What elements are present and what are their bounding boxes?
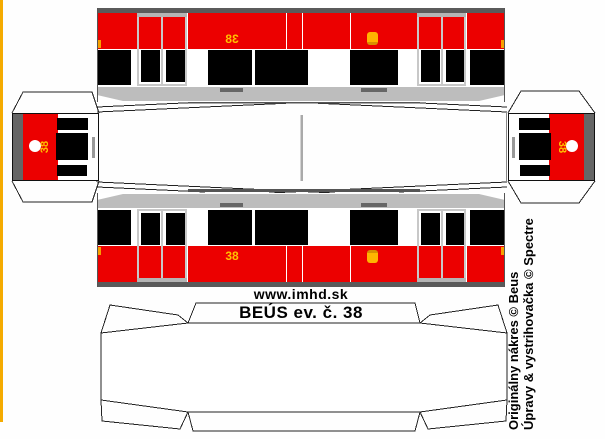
door-mullion bbox=[161, 12, 163, 86]
roof-step-mark bbox=[361, 88, 387, 92]
cap-window bbox=[519, 118, 550, 130]
panel-divider bbox=[466, 13, 467, 49]
roof-center-seam bbox=[301, 115, 304, 181]
roof-step-mark bbox=[361, 203, 387, 207]
roof-fold-bars bbox=[188, 100, 420, 192]
panel-divider bbox=[286, 13, 287, 49]
cap-window bbox=[57, 165, 87, 176]
headlight-mark bbox=[367, 32, 378, 45]
roof-panel bbox=[97, 113, 507, 182]
panel-divider bbox=[350, 246, 351, 282]
door-mullion bbox=[441, 209, 443, 283]
side-window bbox=[98, 210, 131, 245]
side-number: 38 bbox=[221, 32, 243, 46]
end-cap-left: 38 bbox=[12, 113, 99, 181]
door-window bbox=[446, 50, 464, 82]
credits-line-2: Úpravy & vystrihovačka © Spectre bbox=[521, 218, 536, 430]
panel-divider bbox=[302, 13, 303, 49]
end-cap-right: 38 bbox=[508, 113, 595, 181]
model-title-label: BEÚS ev. č. 38 bbox=[97, 303, 505, 323]
side-window bbox=[255, 50, 308, 85]
door-window bbox=[421, 50, 440, 82]
door-mullion bbox=[441, 12, 443, 86]
door-window bbox=[166, 213, 185, 245]
panel-divider bbox=[350, 13, 351, 49]
side-strip-bottom: 38 bbox=[97, 193, 505, 287]
panel-divider bbox=[187, 246, 188, 282]
side-window bbox=[350, 50, 398, 85]
strip-edge-right bbox=[504, 8, 505, 102]
door-window bbox=[446, 213, 464, 245]
cap-door-handle bbox=[512, 137, 515, 158]
side-window bbox=[255, 210, 308, 245]
side-window bbox=[470, 50, 505, 85]
headlight-mark bbox=[367, 250, 378, 263]
door-window bbox=[141, 213, 160, 245]
imhd-url-label: www.imhd.sk bbox=[97, 286, 505, 302]
panel-divider bbox=[466, 246, 467, 282]
roof-step-mark bbox=[220, 203, 243, 207]
strip-edge-left bbox=[97, 8, 98, 102]
side-strip-top-flipped: 38 bbox=[97, 8, 505, 102]
cap-window bbox=[520, 165, 550, 176]
papercraft-sheet: 38 38 38 38 www.imhd.sk BEÚS ev. č. 38 O… bbox=[0, 0, 605, 439]
door-window bbox=[141, 50, 160, 82]
cap-roof-strip bbox=[584, 114, 594, 180]
cap-roof-strip bbox=[13, 114, 23, 180]
door-window bbox=[166, 50, 185, 82]
cap-number: 38 bbox=[38, 140, 52, 154]
credits-line-1: Originálny nákres © Beus bbox=[506, 218, 521, 430]
side-window bbox=[208, 210, 252, 245]
floor-tab-bottom-center bbox=[188, 412, 420, 431]
side-window bbox=[98, 50, 131, 85]
side-window bbox=[470, 210, 505, 245]
strip-edge-left bbox=[97, 193, 98, 287]
cap-window bbox=[56, 133, 88, 160]
side-number: 38 bbox=[221, 249, 243, 263]
door-window bbox=[421, 213, 440, 245]
cap-window bbox=[519, 133, 551, 160]
side-window bbox=[208, 50, 252, 85]
panel-divider bbox=[302, 246, 303, 282]
panel-divider bbox=[286, 246, 287, 282]
roof-band bbox=[97, 193, 505, 208]
cap-number: 38 bbox=[555, 140, 569, 154]
strip-edge-right bbox=[504, 193, 505, 287]
cap-window bbox=[57, 118, 88, 130]
panel-divider bbox=[187, 13, 188, 49]
credits-vertical: Originálny nákres © Beus Úpravy & vystri… bbox=[506, 218, 538, 430]
roof-band bbox=[97, 87, 505, 102]
roof-step-mark bbox=[220, 88, 243, 92]
cap-door-handle bbox=[92, 137, 95, 158]
door-mullion bbox=[161, 209, 163, 283]
skirt-bar bbox=[97, 8, 505, 13]
side-window bbox=[350, 210, 398, 245]
